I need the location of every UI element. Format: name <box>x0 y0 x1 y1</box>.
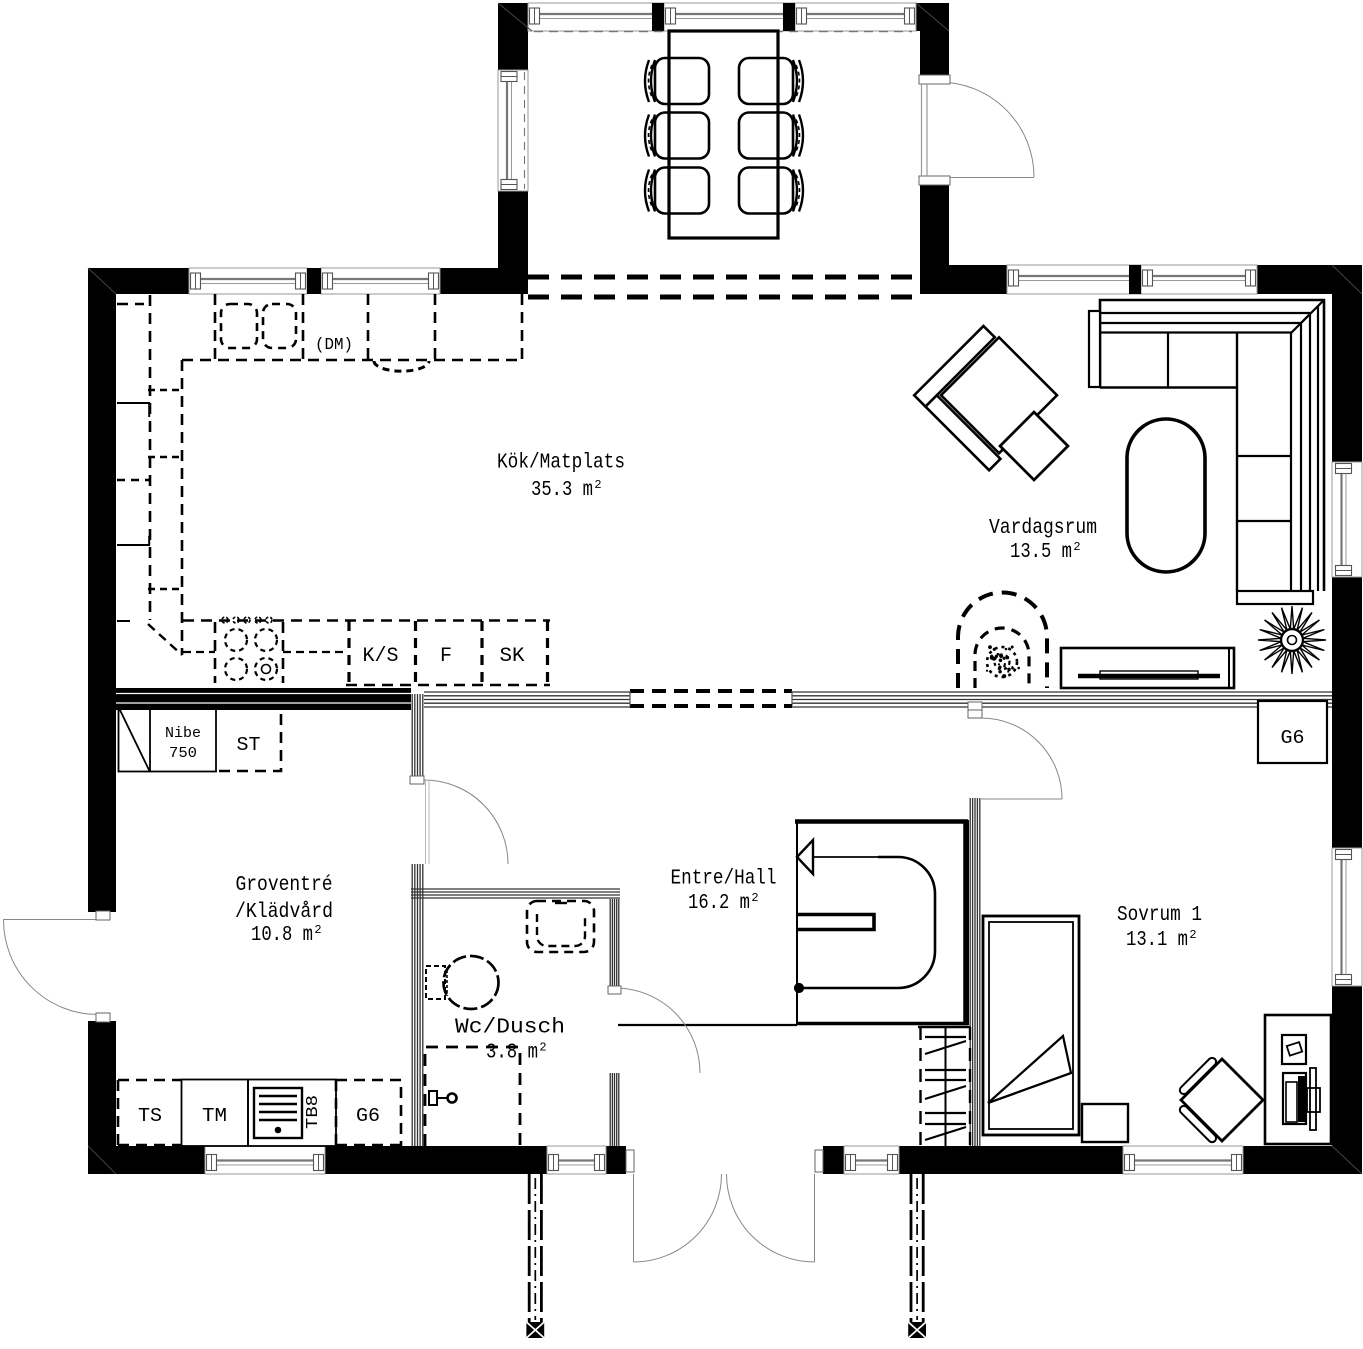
svg-text:G6: G6 <box>356 1105 380 1127</box>
svg-text:Vardagsrum: Vardagsrum <box>989 517 1097 540</box>
svg-text:Kök/Matplats: Kök/Matplats <box>497 452 625 475</box>
svg-text:K/S: K/S <box>363 645 399 668</box>
svg-text:Nibe: Nibe <box>165 725 201 742</box>
svg-text:2: 2 <box>1189 928 1196 942</box>
svg-text:TS: TS <box>138 1105 162 1127</box>
svg-text:2: 2 <box>539 1041 546 1055</box>
svg-text:Wc/Dusch: Wc/Dusch <box>455 1017 565 1040</box>
svg-text:(DM): (DM) <box>315 336 353 355</box>
svg-text:35.3 m: 35.3 m <box>531 479 593 502</box>
svg-text:Entre/Hall: Entre/Hall <box>671 868 777 891</box>
svg-text:3.8 m: 3.8 m <box>486 1042 538 1065</box>
svg-text:13.5 m: 13.5 m <box>1010 541 1072 564</box>
svg-text:Sovrum 1: Sovrum 1 <box>1117 904 1202 927</box>
svg-text:G6: G6 <box>1281 727 1305 749</box>
svg-text:TM: TM <box>202 1105 227 1127</box>
svg-text:2: 2 <box>594 478 601 492</box>
svg-text:750: 750 <box>169 745 197 762</box>
svg-text:2: 2 <box>314 923 321 937</box>
svg-text:ST: ST <box>237 734 261 756</box>
svg-text:/Klädvård: /Klädvård <box>235 901 333 924</box>
svg-text:13.1 m: 13.1 m <box>1126 929 1188 952</box>
svg-text:2: 2 <box>751 891 758 905</box>
svg-text:Groventré: Groventré <box>236 874 333 897</box>
svg-text:10.8 m: 10.8 m <box>251 924 313 947</box>
svg-text:SK: SK <box>500 645 525 668</box>
svg-text:TB8: TB8 <box>304 1095 323 1129</box>
svg-text:F: F <box>440 645 452 668</box>
svg-text:2: 2 <box>1073 540 1080 554</box>
svg-text:16.2 m: 16.2 m <box>688 892 750 915</box>
